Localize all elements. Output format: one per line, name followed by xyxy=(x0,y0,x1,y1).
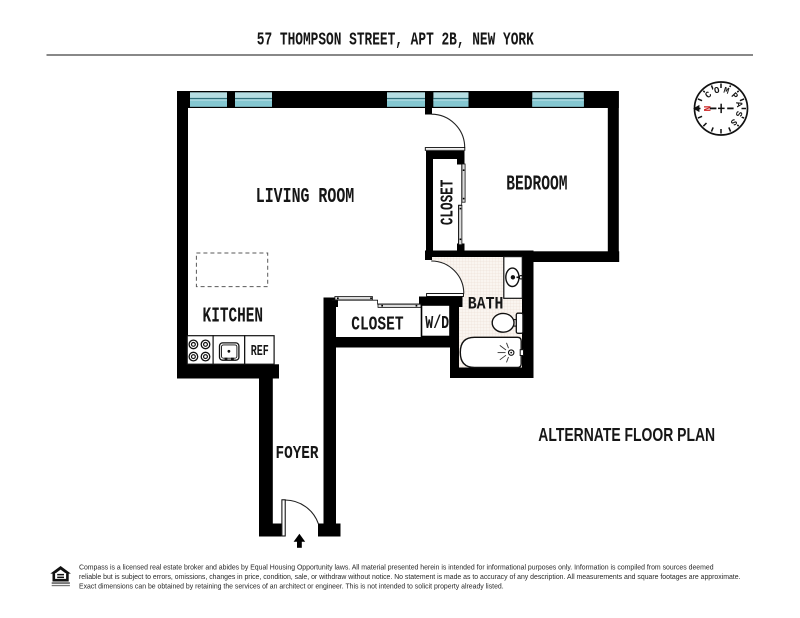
svg-text:REF: REF xyxy=(251,342,269,360)
svg-text:BATH: BATH xyxy=(468,295,504,315)
svg-text:KITCHEN: KITCHEN xyxy=(203,305,264,329)
svg-text:CLOSET: CLOSET xyxy=(351,314,404,336)
svg-text:W/D: W/D xyxy=(425,313,449,334)
svg-text:FOYER: FOYER xyxy=(276,443,320,464)
svg-text:reliable but is subject to err: reliable but is subject to errors, omiss… xyxy=(79,574,741,581)
svg-text:Exact dimensions can be obtain: Exact dimensions can be obtained by reta… xyxy=(79,583,504,590)
svg-text:CLOSET: CLOSET xyxy=(438,180,459,226)
svg-text:Compass is a licensed real est: Compass is a licensed real estate broker… xyxy=(79,564,714,571)
svg-text:BEDROOM: BEDROOM xyxy=(506,173,567,196)
svg-text:LIVING ROOM: LIVING ROOM xyxy=(256,185,355,209)
svg-text:ALTERNATE FLOOR PLAN: ALTERNATE FLOOR PLAN xyxy=(538,424,715,445)
svg-text:57 THOMPSON STREET, APT 2B, NE: 57 THOMPSON STREET, APT 2B, NEW YORK xyxy=(257,28,534,50)
